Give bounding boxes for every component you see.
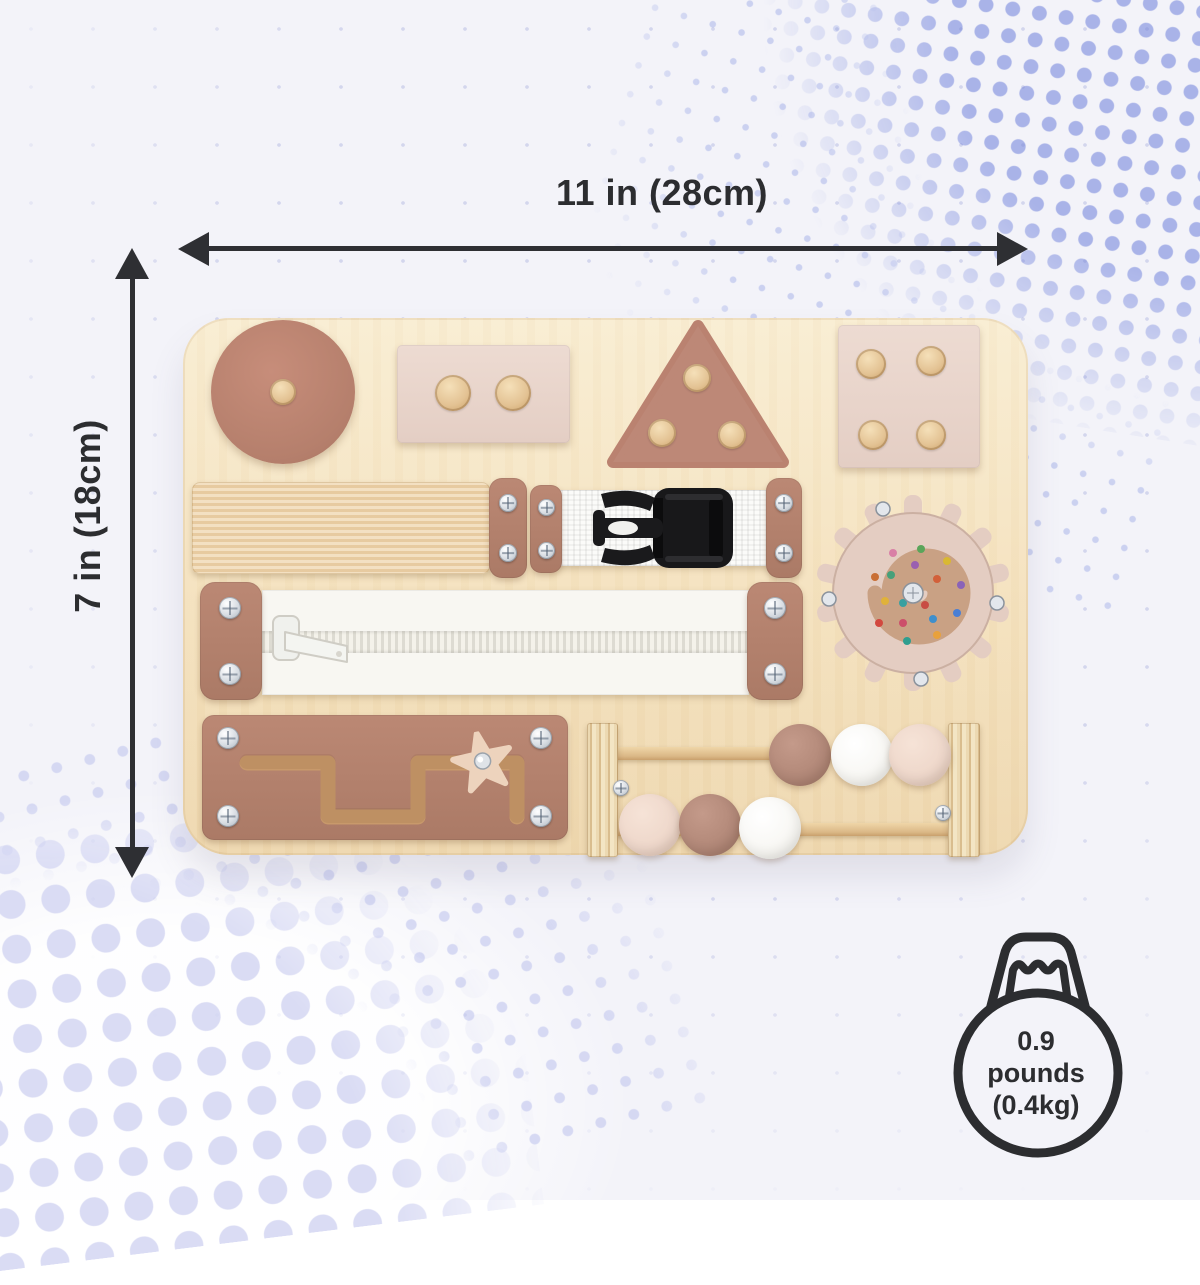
square-shape <box>838 325 980 468</box>
rectangle-shape <box>397 345 570 443</box>
screw-icon <box>764 663 786 685</box>
screw-icon <box>217 727 239 749</box>
triangle-shape-peg <box>683 364 711 392</box>
triangle-shape-peg <box>718 421 746 449</box>
screw-icon <box>499 544 517 562</box>
arrowhead-down-icon <box>115 847 149 878</box>
abacus-bead <box>679 794 741 856</box>
screw-icon <box>775 544 793 562</box>
screw-icon <box>935 805 951 821</box>
screw-icon <box>530 727 552 749</box>
screw-icon <box>764 597 786 619</box>
screw-icon <box>499 494 517 512</box>
gear-bead-spiral <box>811 491 1015 695</box>
square-shape-peg <box>858 420 888 450</box>
buckle-strap-right-anchor <box>766 478 802 578</box>
abacus-right-post <box>948 723 980 857</box>
weight-value: 0.9 <box>946 1025 1126 1057</box>
width-dimension-line <box>203 246 1003 251</box>
abacus-bead <box>889 724 951 786</box>
weight-badge-text: 0.9 pounds (0.4kg) <box>946 1025 1126 1121</box>
screw-icon <box>538 499 555 516</box>
zipper-slider <box>267 610 357 680</box>
width-dimension-label: 11 in (28cm) <box>462 172 862 214</box>
weight-unit: pounds <box>946 1057 1126 1089</box>
screw-icon <box>217 805 239 827</box>
height-dimension-line <box>130 274 135 852</box>
screw-icon <box>530 805 552 827</box>
screw-icon <box>219 663 241 685</box>
busy-board <box>183 318 1028 855</box>
triangle-shape <box>603 318 793 470</box>
square-shape-peg <box>916 346 946 376</box>
abacus-bead <box>739 797 801 859</box>
height-dimension-label: 7 in (18cm) <box>67 366 109 666</box>
rectangle-shape-peg <box>495 375 531 411</box>
square-shape-peg <box>856 349 886 379</box>
screw-icon <box>538 542 555 559</box>
side-release-buckle <box>591 480 741 576</box>
arrowhead-right-icon <box>997 232 1028 266</box>
product-infographic: 11 in (28cm) 7 in (18cm) <box>0 0 1200 1200</box>
square-shape-peg <box>916 420 946 450</box>
circle-shape-peg <box>270 379 296 405</box>
abacus-bead <box>619 794 681 856</box>
elastic-strap <box>192 482 490 574</box>
elastic-strap-anchor <box>489 478 527 578</box>
screw-icon <box>219 597 241 619</box>
screw-icon <box>775 494 793 512</box>
screw-icon <box>613 780 629 796</box>
weight-metric: (0.4kg) <box>946 1089 1126 1121</box>
abacus-bead <box>769 724 831 786</box>
rectangle-shape-peg <box>435 375 471 411</box>
arrowhead-up-icon <box>115 248 149 279</box>
maze-star-slider <box>445 725 521 801</box>
arrowhead-left-icon <box>178 232 209 266</box>
triangle-shape-peg <box>648 419 676 447</box>
abacus-bead <box>831 724 893 786</box>
